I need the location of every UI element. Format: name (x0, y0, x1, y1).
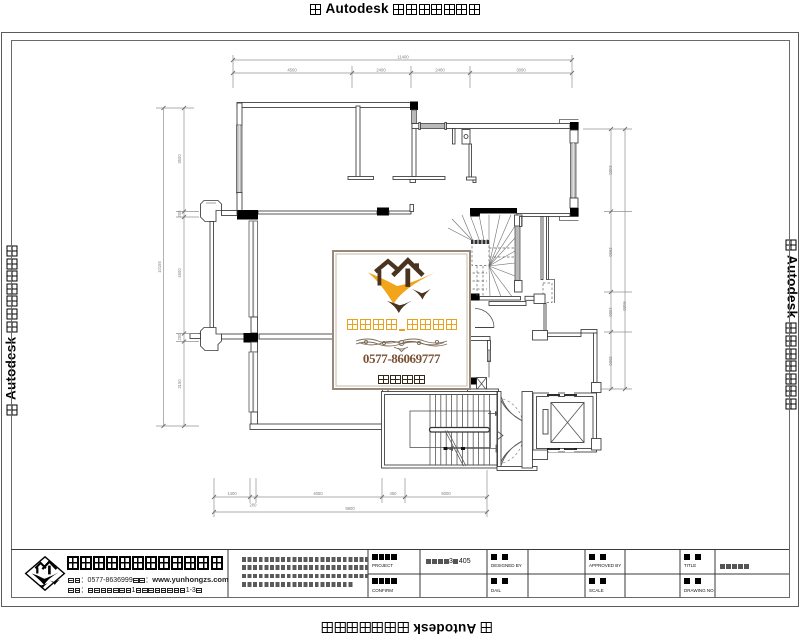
svg-text:200: 200 (250, 503, 258, 508)
svg-text:200: 200 (177, 333, 182, 341)
svg-text:5000: 5000 (441, 491, 451, 496)
svg-text:3500: 3500 (177, 154, 182, 164)
svg-text:1500: 1500 (608, 307, 613, 317)
svg-text:200: 200 (177, 210, 182, 218)
svg-text:11400: 11400 (397, 55, 409, 60)
svg-text:2400: 2400 (435, 68, 445, 73)
svg-text:450: 450 (390, 491, 398, 496)
svg-text:2400: 2400 (608, 165, 613, 175)
svg-text:1400: 1400 (227, 491, 237, 496)
svg-text:3150: 3150 (177, 379, 182, 389)
svg-text:4500: 4500 (287, 68, 297, 73)
svg-text:4500: 4500 (177, 268, 182, 278)
svg-text:2000: 2000 (608, 356, 613, 366)
svg-text:2400: 2400 (376, 68, 386, 73)
svg-text:4050: 4050 (313, 491, 323, 496)
svg-text:9900: 9900 (345, 506, 355, 511)
svg-text:3000: 3000 (516, 68, 526, 73)
svg-text:9400: 9400 (622, 301, 627, 311)
svg-text:2950: 2950 (608, 247, 613, 257)
svg-text:10155: 10155 (157, 261, 162, 273)
